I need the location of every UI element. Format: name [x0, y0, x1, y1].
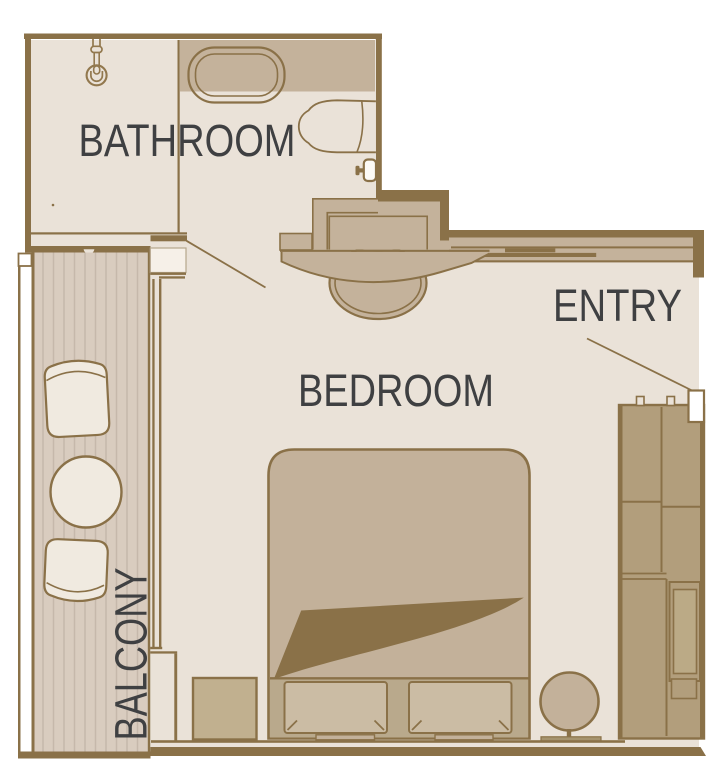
- svg-text:BEDROOM: BEDROOM: [298, 365, 494, 416]
- svg-text:ENTRY: ENTRY: [553, 280, 682, 331]
- svg-text:BATHROOM: BATHROOM: [79, 115, 296, 166]
